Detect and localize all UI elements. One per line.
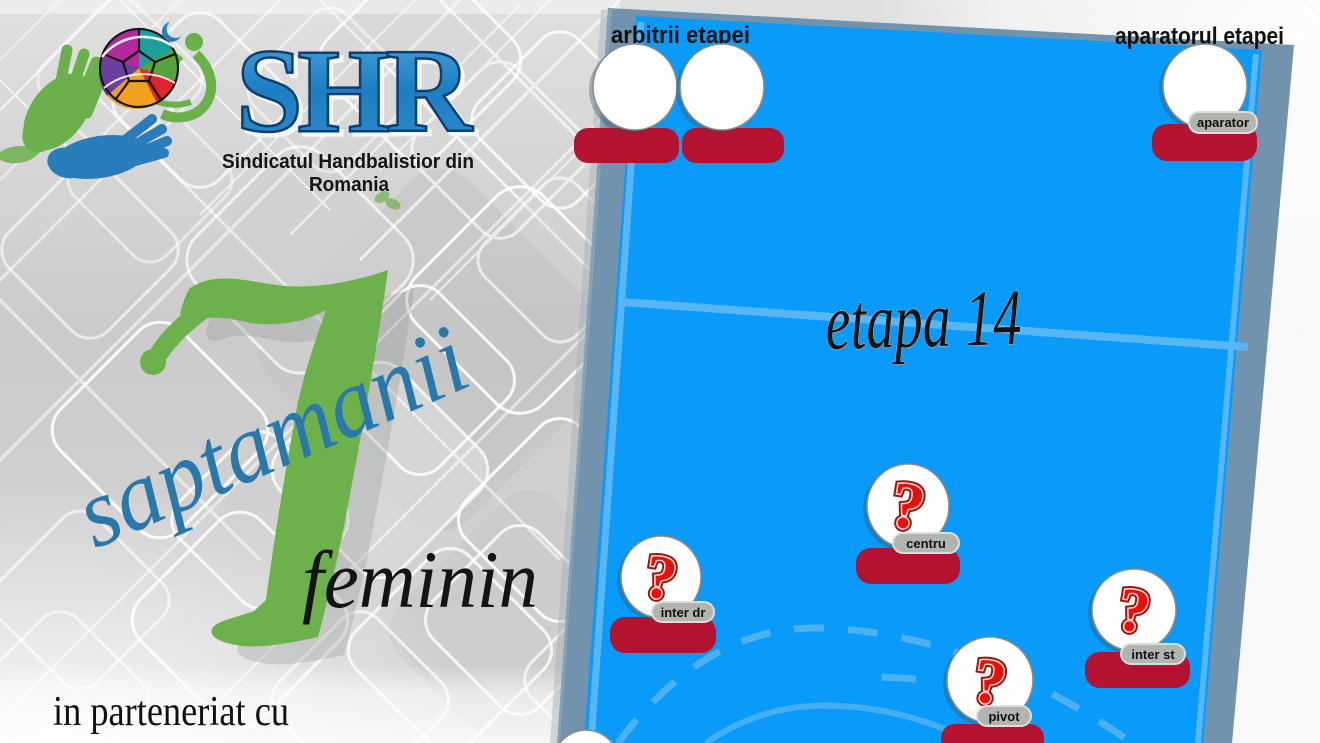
svg-text:Romania: Romania bbox=[309, 174, 390, 196]
svg-text:etapa 14: etapa 14 bbox=[824, 274, 1022, 367]
svg-text:feminin: feminin bbox=[302, 534, 538, 625]
svg-text:SHR: SHR bbox=[236, 24, 473, 157]
svg-text:Sindicatul Handbalistior din: Sindicatul Handbalistior din bbox=[222, 151, 474, 173]
svg-text:aparator: aparator bbox=[1197, 115, 1249, 130]
svg-text:inter dr: inter dr bbox=[661, 605, 706, 620]
svg-text:inter st: inter st bbox=[1131, 647, 1175, 662]
svg-text:in parteneriat cu: in parteneriat cu bbox=[53, 689, 289, 735]
svg-text:pivot: pivot bbox=[988, 709, 1020, 724]
svg-text:centru: centru bbox=[906, 536, 946, 551]
